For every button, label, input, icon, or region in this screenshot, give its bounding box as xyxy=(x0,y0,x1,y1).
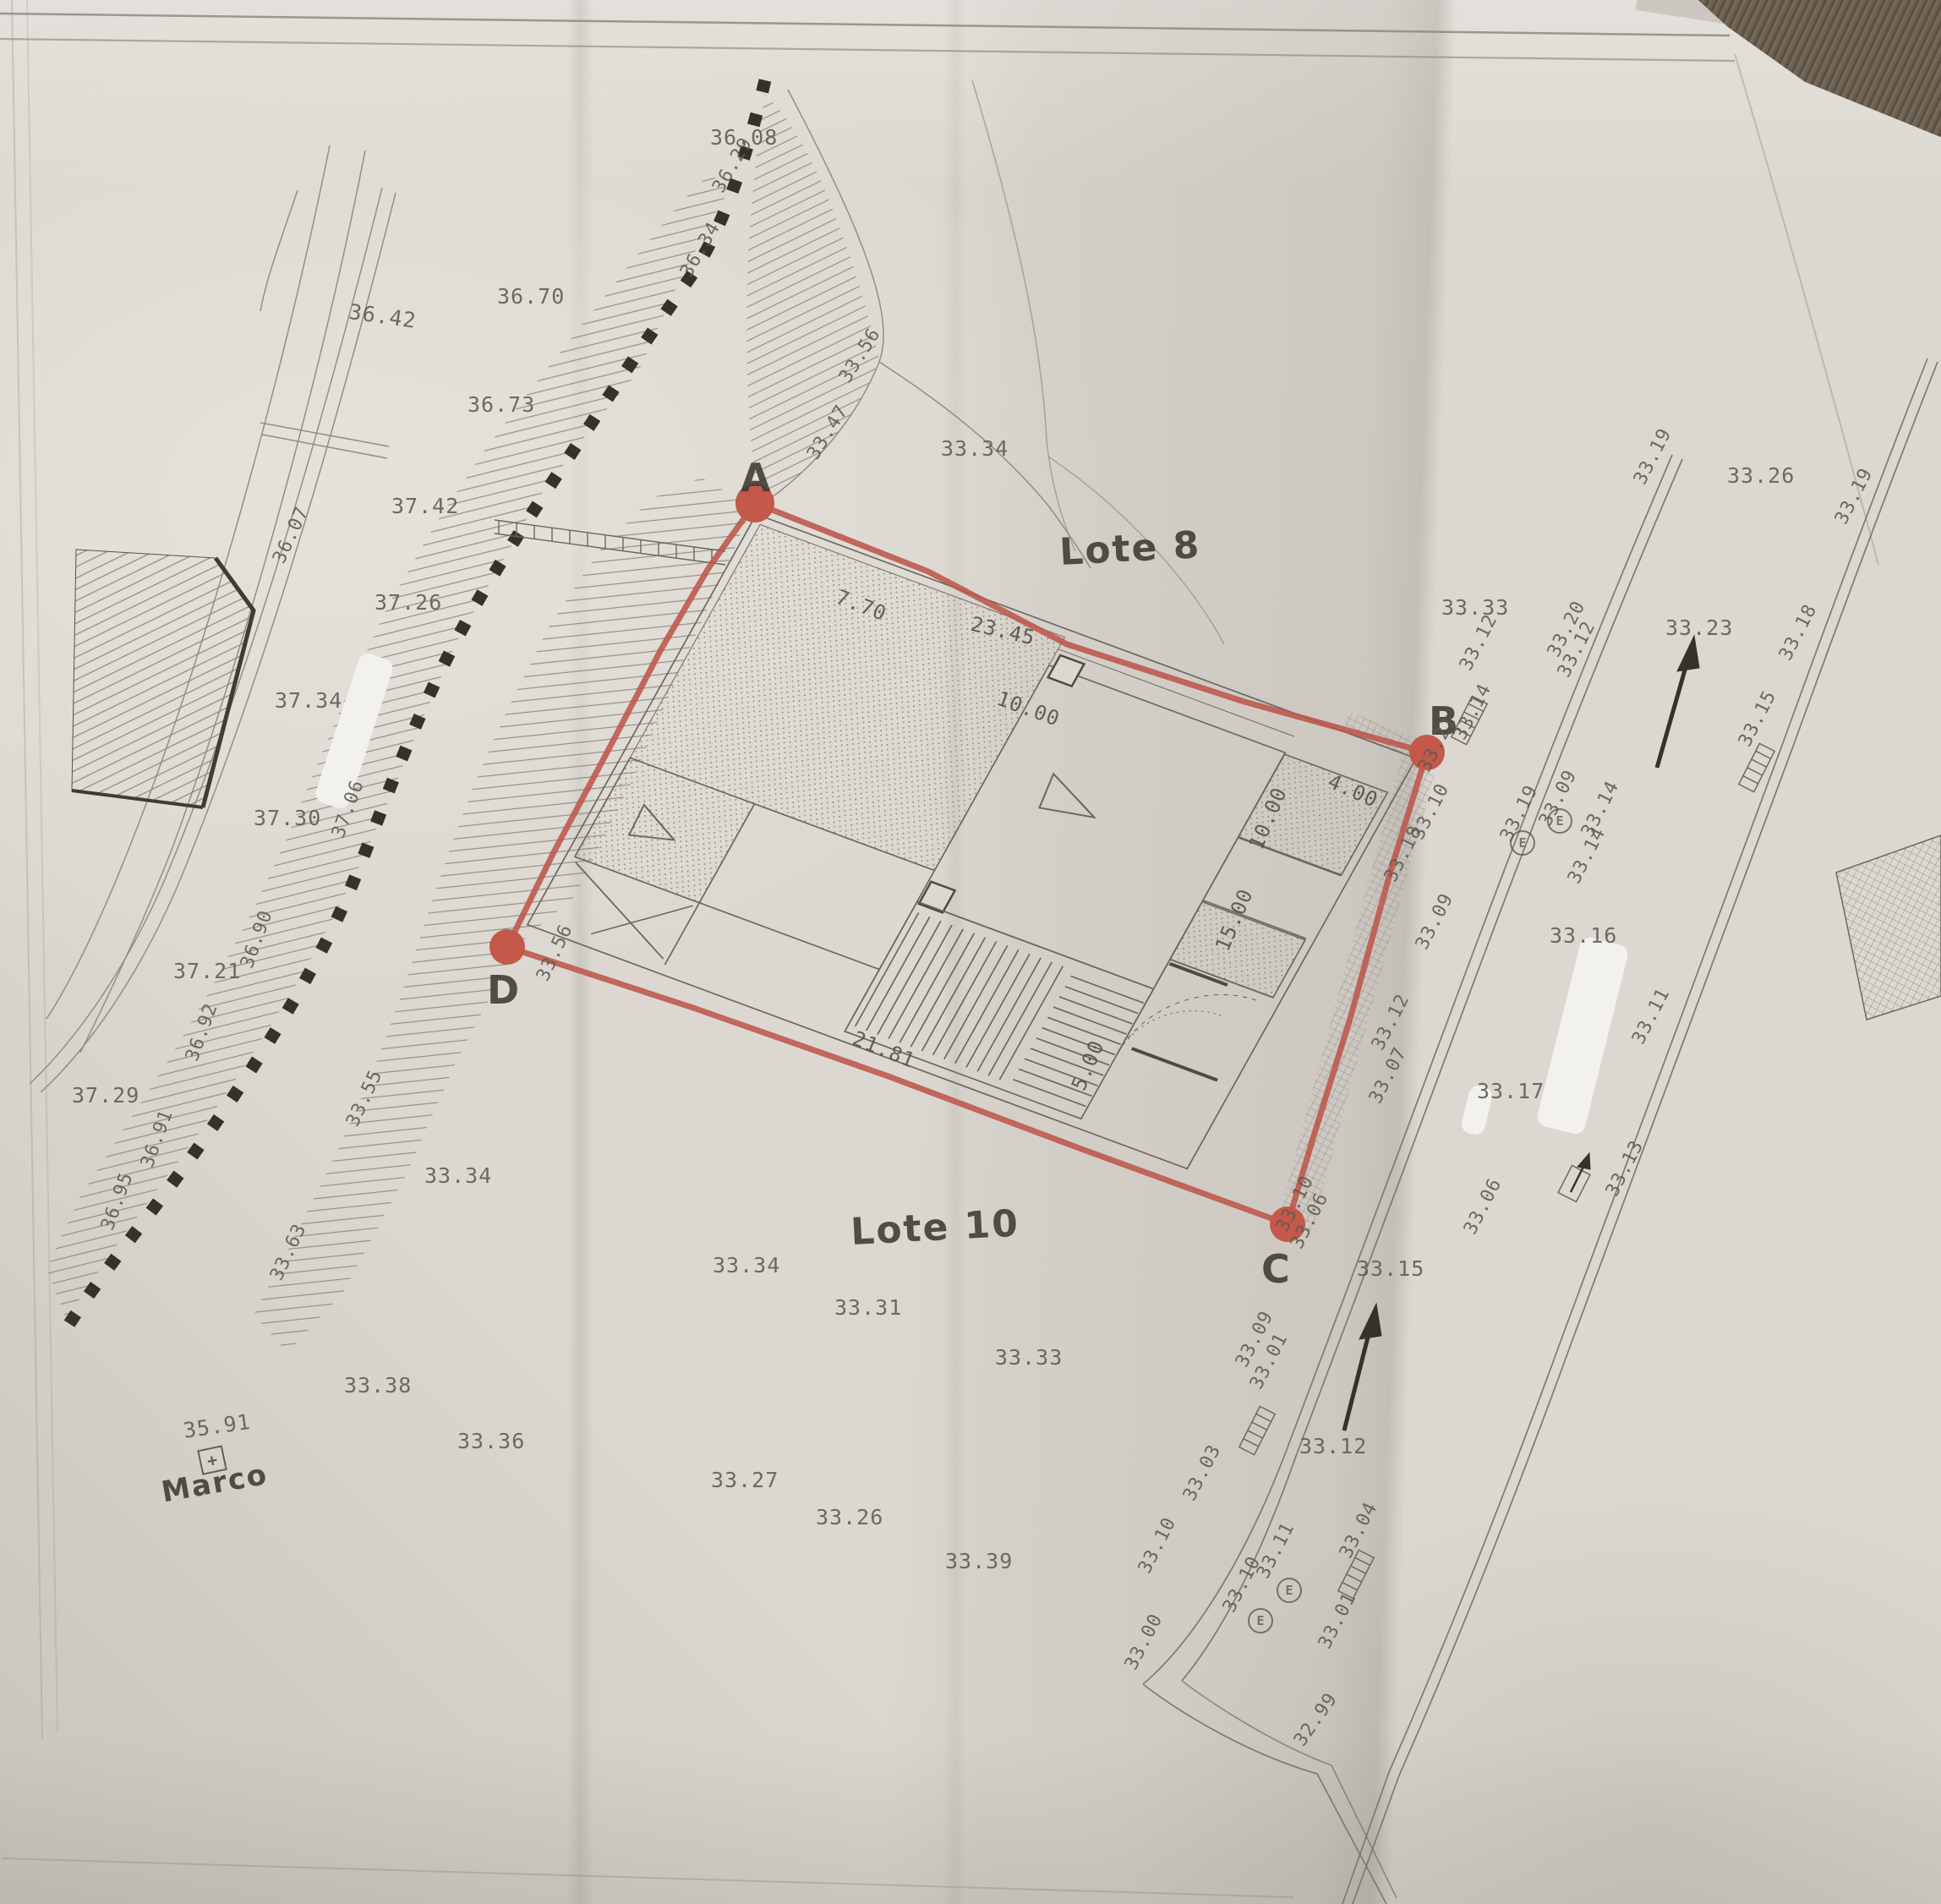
spot-elevation-label: 36.73 xyxy=(467,392,535,417)
spot-elevation-label: 33.17 xyxy=(1477,1079,1545,1103)
spot-elevation-label: 33.16 xyxy=(1550,923,1617,948)
spot-elevation-label: 33.26 xyxy=(1727,463,1795,488)
spot-elevation-label: 33.19 xyxy=(1831,465,1878,528)
lot-or-corner-label: D xyxy=(487,967,521,1013)
dimension-label: 10.00 xyxy=(1244,784,1292,853)
utility-pole-icon: E xyxy=(1547,808,1572,834)
spot-elevation-label: 36.90 xyxy=(237,907,277,971)
spot-elevation-label: 36.95 xyxy=(97,1169,138,1233)
spot-elevation-label: 36.42 xyxy=(347,299,418,333)
spot-elevation-label: 36.07 xyxy=(269,503,314,566)
utility-pole-icon: E xyxy=(1277,1578,1302,1603)
dimension-label: 21.81 xyxy=(850,1026,919,1073)
spot-elevation-label: 33.11 xyxy=(1253,1519,1299,1583)
spot-elevation-label: 33.06 xyxy=(1460,1175,1506,1239)
dimension-label: 5.00 xyxy=(1067,1037,1109,1094)
spot-elevation-label: 33.47 xyxy=(803,402,853,464)
spot-elevation-label: 33.34 xyxy=(424,1163,492,1188)
spot-elevation-label: 33.19 xyxy=(1630,425,1676,489)
lot-or-corner-label: Lote 8 xyxy=(1058,523,1202,574)
dimension-label: 7.70 xyxy=(833,585,890,626)
spot-elevation-label: 33.09 xyxy=(1412,890,1458,954)
utility-pole-icon: E xyxy=(1510,830,1535,856)
spot-elevation-label: 36.34 xyxy=(676,218,724,281)
spot-elevation-label: 33.12 xyxy=(1299,1434,1367,1458)
spot-elevation-label: 33.33 xyxy=(995,1345,1063,1370)
spot-elevation-label: 33.15 xyxy=(1735,687,1781,751)
spot-elevation-label: 36.91 xyxy=(137,1107,178,1170)
spot-elevation-label: 33.04 xyxy=(1336,1499,1382,1562)
spot-elevation-label: 33.01 xyxy=(1315,1589,1361,1653)
lot-or-corner-label: Lote 10 xyxy=(850,1202,1020,1254)
spot-elevation-label: 33.34 xyxy=(713,1253,780,1278)
lot-or-corner-label: C xyxy=(1261,1246,1292,1292)
spot-elevation-label: 33.12 xyxy=(1456,611,1502,675)
spot-elevation-label: 32.99 xyxy=(1290,1689,1342,1751)
spot-elevation-label: 33.26 xyxy=(816,1505,883,1529)
spot-elevation-label: 33.15 xyxy=(1357,1256,1424,1281)
spot-elevation-label: 33.23 xyxy=(1665,616,1733,640)
label-layer: Lote 8Lote 10ABCD7.7023.4510.004.0010.00… xyxy=(0,0,1941,1904)
spot-elevation-label: 37.06 xyxy=(328,777,369,840)
spot-elevation-label: 33.34 xyxy=(941,436,1009,461)
spot-elevation-label: 36.70 xyxy=(497,284,565,309)
dimension-label: 4.00 xyxy=(1325,769,1382,812)
spot-elevation-label: 33.12 xyxy=(1368,991,1414,1054)
dimension-label: 23.45 xyxy=(969,612,1038,650)
spot-elevation-label: 33.07 xyxy=(1365,1044,1412,1108)
spot-elevation-label: 33.63 xyxy=(266,1220,311,1283)
utility-pole-icon: E xyxy=(1248,1608,1273,1633)
spot-elevation-label: 37.26 xyxy=(375,590,442,615)
spot-elevation-label: 33.56 xyxy=(835,325,885,387)
spot-elevation-label: 33.13 xyxy=(1602,1137,1648,1201)
spot-elevation-label: 33.27 xyxy=(711,1468,779,1492)
dimension-label: 10.00 xyxy=(993,687,1063,731)
spot-elevation-label: 33.18 xyxy=(1381,823,1427,886)
spot-elevation-label: 33.11 xyxy=(1628,985,1675,1048)
spot-elevation-label: 33.55 xyxy=(342,1066,387,1130)
spot-elevation-label: 33.36 xyxy=(457,1429,525,1453)
spot-elevation-label: 33.10 xyxy=(1135,1514,1181,1578)
spot-elevation-label: 37.30 xyxy=(254,806,321,830)
dimension-label: 15.00 xyxy=(1211,885,1258,955)
spot-elevation-label: 33.56 xyxy=(533,921,577,984)
spot-elevation-label: 33.31 xyxy=(834,1295,902,1320)
spot-elevation-label: 36.92 xyxy=(182,1000,222,1064)
spot-elevation-label: 33.18 xyxy=(1775,601,1822,665)
spot-elevation-label: 37.42 xyxy=(391,494,459,518)
photographed-site-plan: + 35.91 Marco Lote 8Lote 10ABCD7.7023.45… xyxy=(0,0,1941,1904)
spot-elevation-label: 37.29 xyxy=(72,1083,139,1108)
spot-elevation-label: 33.14 xyxy=(1564,824,1610,888)
spot-elevation-label: 33.38 xyxy=(344,1373,412,1398)
lot-or-corner-label: A xyxy=(741,455,773,501)
spot-elevation-label: 33.00 xyxy=(1121,1611,1167,1674)
spot-elevation-label: 33.39 xyxy=(945,1549,1013,1573)
spot-elevation-label: 33.33 xyxy=(1441,595,1509,620)
spot-elevation-label: 37.34 xyxy=(275,688,342,713)
spot-elevation-label: 37.21 xyxy=(173,959,241,983)
spot-elevation-label: 33.03 xyxy=(1179,1442,1226,1505)
